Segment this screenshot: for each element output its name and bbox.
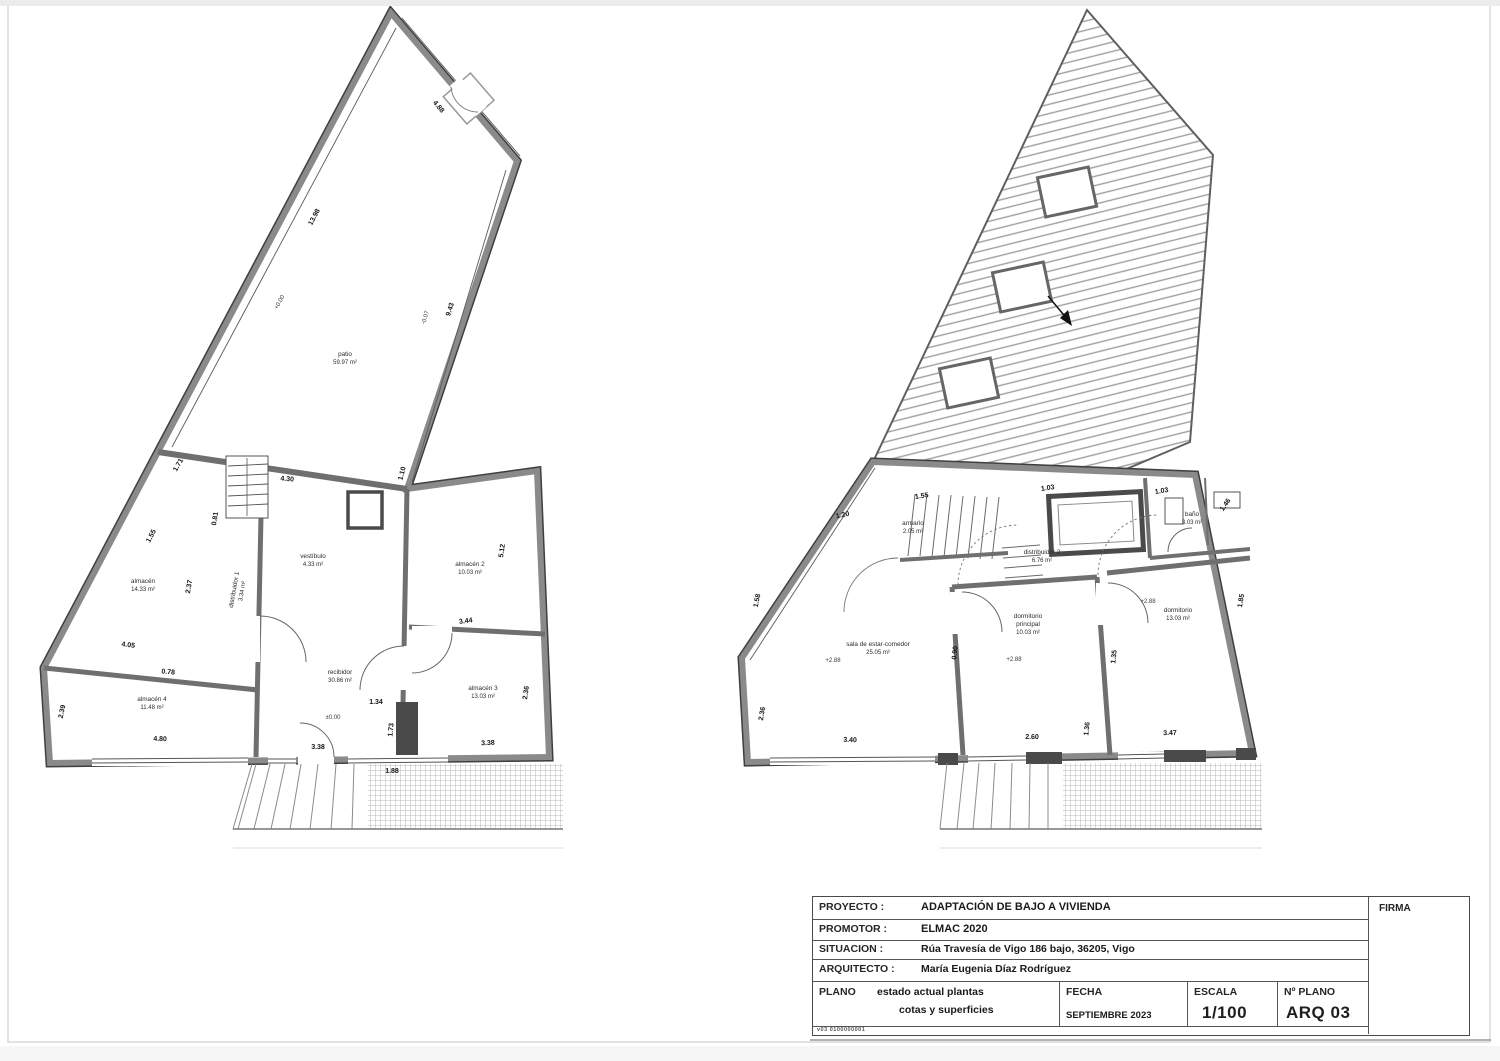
room-area: 25.05 m²: [866, 650, 890, 656]
room-area: 13.03 m²: [471, 694, 495, 700]
room-area: 11.48 m²: [140, 705, 163, 711]
row-label: PROMOTOR :: [819, 923, 887, 935]
room-label: patio: [338, 351, 352, 358]
door-gap: [412, 626, 452, 638]
dim-label: 3.40: [843, 737, 857, 744]
room-label: vestíbulo: [300, 553, 326, 560]
level-mark: +2.88: [1006, 657, 1022, 663]
left-exterior-wall: [44, 13, 549, 763]
title-cell-fecha: FECHA SEPTIEMBRE 2023: [1059, 982, 1187, 1027]
room-area: 3.03 m²: [1182, 520, 1202, 526]
row-value: ADAPTACIÓN DE BAJO A VIVIENDA: [921, 901, 1111, 913]
room-area: 13.03 m²: [1166, 616, 1190, 622]
room-area: 6.76 m²: [1032, 558, 1052, 564]
row-value: ELMAC 2020: [921, 923, 988, 935]
plan-left-ground-floor: patio 59.97 m² almacén 14.33 m² distribu…: [44, 13, 563, 848]
room-label: armario: [902, 520, 924, 527]
dim-label: 1.36: [1083, 722, 1091, 736]
drawing-sheet: patio 59.97 m² almacén 14.33 m² distribu…: [0, 0, 1500, 1061]
title-row-promotor: PROMOTOR : ELMAC 2020: [813, 920, 1368, 941]
room-label: almacén 4: [137, 696, 167, 703]
level-mark: +2.88: [825, 658, 841, 664]
dim-label: 3.38: [481, 740, 495, 747]
room-area: 4.33 m²: [303, 562, 323, 568]
sheet-bottom-margin: [0, 1046, 1500, 1061]
right-pavement-grid: [1063, 763, 1262, 829]
skylight: [1037, 167, 1096, 217]
cell-label: ESCALA: [1194, 986, 1237, 998]
level-mark: ±0.00: [326, 715, 342, 721]
row-label: PROYECTO :: [819, 901, 884, 913]
firma-label: FIRMA: [1379, 903, 1411, 914]
door-gap: [950, 592, 963, 634]
room-label: almacén 2: [455, 561, 485, 568]
title-row-situacion: SITUACION : Rúa Travesía de Vigo 186 baj…: [813, 941, 1368, 960]
dim-label: 1.73: [387, 723, 395, 737]
escala-value: 1/100: [1202, 1003, 1247, 1023]
right-lightwell: [1049, 492, 1144, 555]
level-mark: +2.88: [1140, 599, 1156, 605]
room-label: recibidor: [328, 669, 353, 676]
dim-label: 0.90: [951, 646, 959, 660]
dim-label: 0.78: [161, 668, 175, 676]
left-wall-chunk: [396, 702, 418, 758]
title-cell-plano: PLANO estado actual plantas cotas y supe…: [813, 982, 1059, 1027]
left-stairs: [226, 456, 268, 518]
room-area: 10.03 m²: [1016, 630, 1040, 636]
sheet-top-margin: [0, 0, 1500, 6]
row-value: María Eugenia Díaz Rodríguez: [921, 963, 1071, 975]
plan-right-upper-floor: distribuidor 2 6.76 m² sala de estar-com…: [742, 10, 1262, 848]
nplano-value: ARQ 03: [1286, 1003, 1350, 1023]
title-row-arquitecto: ARQUITECTO : María Eugenia Díaz Rodrígue…: [813, 960, 1368, 982]
skylight: [992, 262, 1051, 312]
dim-label: 1.35: [1110, 650, 1118, 664]
room-label: dormitorio: [1014, 613, 1043, 620]
dim-label: 3.47: [1163, 730, 1177, 737]
cell-label: FECHA: [1066, 986, 1102, 998]
title-ref-strip: v03 0100000001: [813, 1027, 1368, 1035]
fecha-value: SEPTIEMBRE 2023: [1066, 1010, 1152, 1021]
cell-label: Nº PLANO: [1284, 986, 1335, 998]
plano-line1: estado actual plantas: [877, 986, 984, 998]
room-area: 14.33 m²: [131, 587, 155, 593]
title-cell-firma: FIRMA: [1368, 897, 1469, 1034]
row-label: ARQUITECTO :: [819, 963, 895, 975]
door-gap: [1096, 583, 1109, 625]
right-steps-fan: [940, 763, 1048, 829]
dim-label: 4.80: [153, 736, 167, 743]
room-label: sala de estar-comedor: [846, 641, 910, 648]
room-area: 2.05 m²: [903, 529, 923, 535]
room-label: almacén 3: [468, 685, 498, 692]
title-row-proyecto: PROYECTO : ADAPTACIÓN DE BAJO A VIVIENDA: [813, 897, 1368, 920]
dim-label: 1.58: [753, 593, 763, 608]
dim-label: 1.88: [385, 768, 399, 775]
cell-label: PLANO: [819, 986, 856, 998]
skylight: [939, 358, 998, 408]
room-area: 30.86 m²: [328, 678, 352, 684]
room-label: baño: [1185, 511, 1200, 518]
dim-label: 1.85: [1237, 593, 1246, 608]
room-label: distribuidor 2: [1024, 549, 1061, 556]
title-block: PROYECTO : ADAPTACIÓN DE BAJO A VIVIENDA…: [812, 896, 1470, 1036]
row-value: Rúa Travesía de Vigo 186 bajo, 36205, Vi…: [921, 943, 1135, 955]
title-cell-escala: ESCALA 1/100: [1187, 982, 1277, 1027]
title-cell-nplano: Nº PLANO ARQ 03: [1277, 982, 1368, 1027]
dim-label: 3.38: [311, 744, 325, 751]
room-label: almacén: [131, 578, 156, 585]
dim-label: 1.34: [369, 699, 383, 706]
dim-label: 4.30: [280, 475, 294, 483]
roof-hatch: [873, 10, 1213, 470]
room-label: dormitorio: [1164, 607, 1193, 614]
dim-label: 2.60: [1025, 734, 1039, 741]
door-gap: [398, 646, 410, 690]
room-area: 10.03 m²: [458, 570, 482, 576]
plano-line2: cotas y superficies: [899, 1004, 994, 1016]
door-gap: [247, 616, 260, 662]
left-closet: [348, 492, 382, 528]
room-area: 59.97 m²: [333, 360, 357, 366]
door-gap: [298, 752, 334, 766]
room-label: principal: [1016, 621, 1040, 628]
ref-code: v03 0100000001: [817, 1027, 865, 1033]
left-steps-fan: [233, 764, 354, 829]
row-label: SITUACION :: [819, 943, 883, 955]
